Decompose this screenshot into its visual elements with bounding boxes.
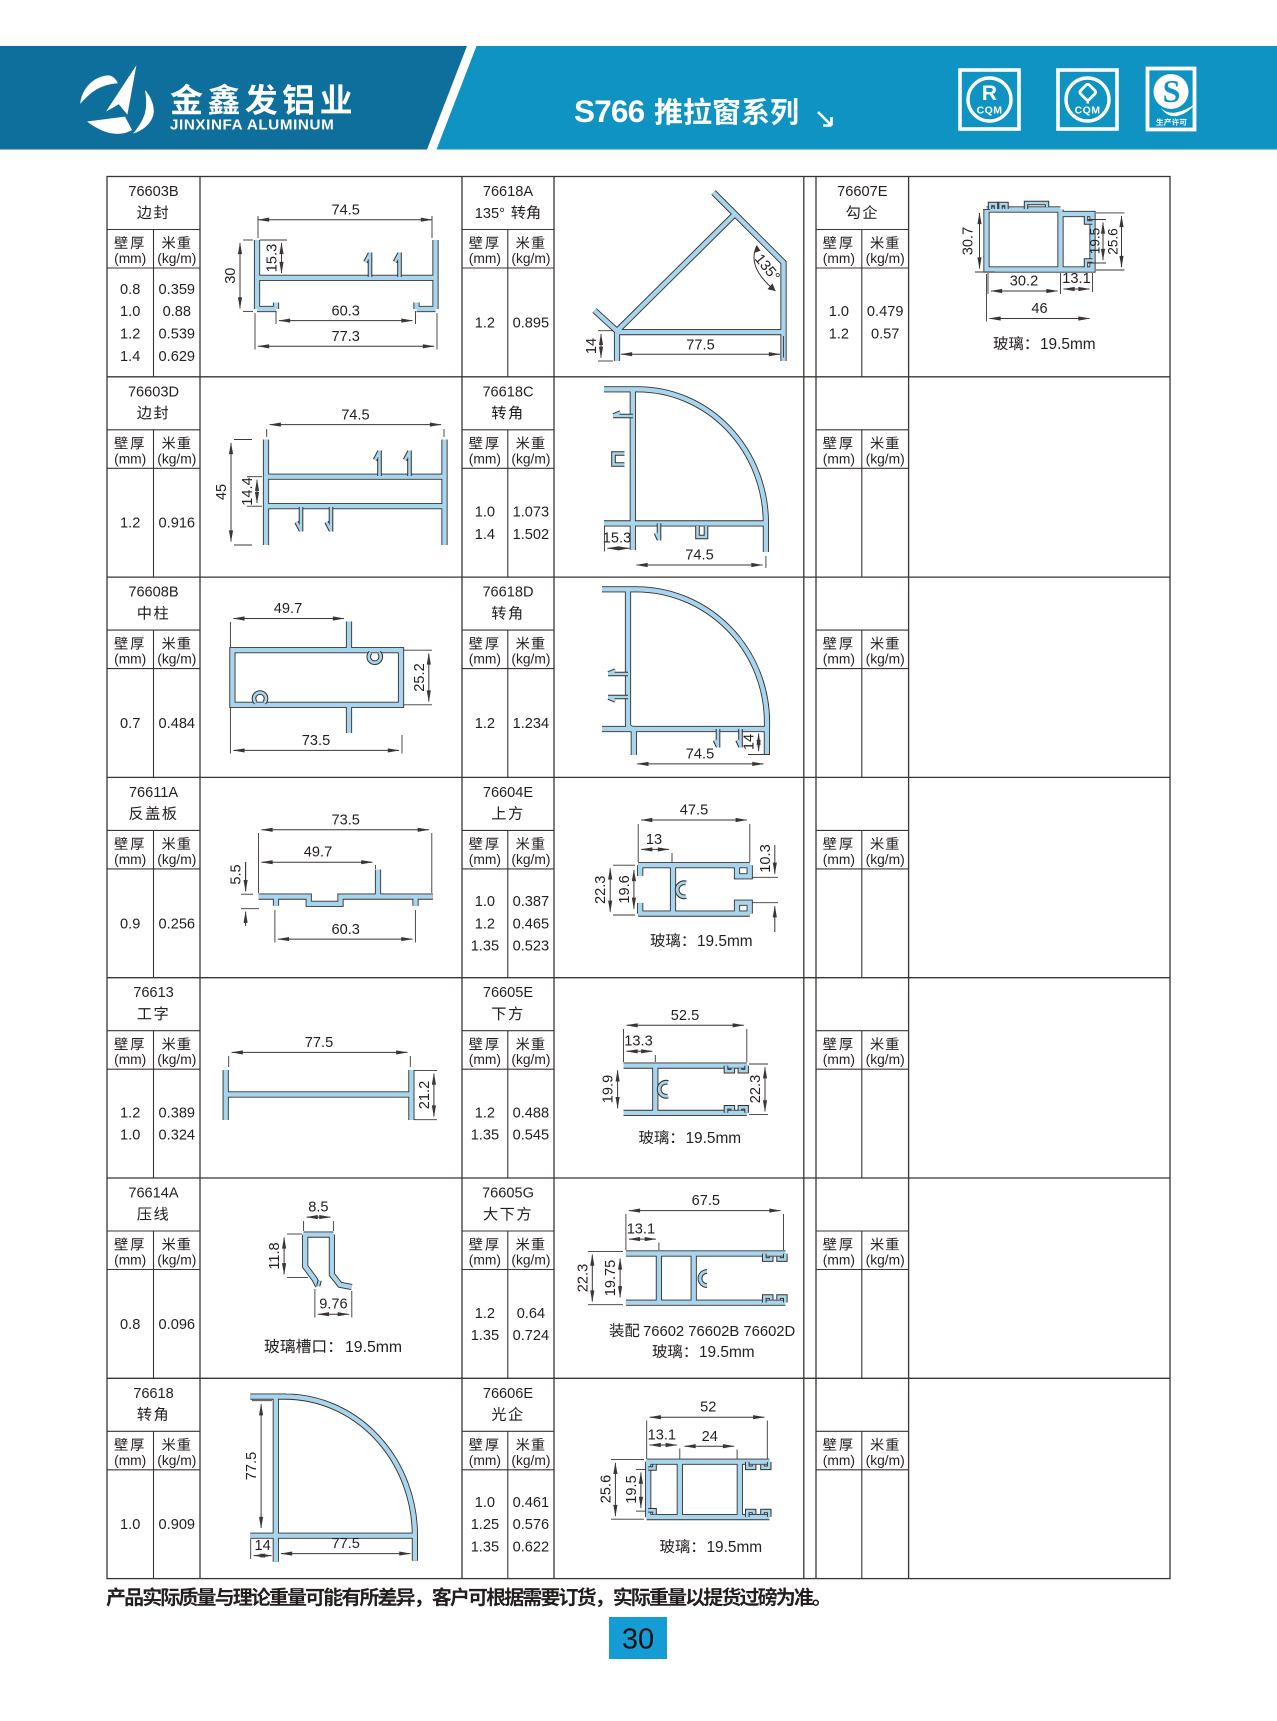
svg-text:76603D: 76603D [128,384,179,400]
svg-text:19.5mm: 19.5mm [697,933,753,950]
svg-text:76608B: 76608B [128,585,178,601]
svg-text:(kg/m): (kg/m) [511,1253,550,1268]
svg-text:19.5mm: 19.5mm [345,1339,402,1356]
svg-text:(mm): (mm) [823,652,855,667]
svg-text:0.64: 0.64 [517,1306,545,1322]
svg-text:(mm): (mm) [114,251,146,266]
svg-text:77.5: 77.5 [331,1536,359,1552]
svg-text:(kg/m): (kg/m) [157,1052,196,1067]
svg-text:77.3: 77.3 [331,329,359,345]
svg-text:1.0: 1.0 [475,894,495,910]
svg-text:76602 76602B 76602D: 76602 76602B 76602D [643,1324,795,1340]
svg-text:S766: S766 [574,93,645,129]
svg-text:76605G: 76605G [482,1186,534,1202]
svg-text:1.2: 1.2 [475,315,495,331]
svg-text:13.1: 13.1 [1062,271,1090,287]
svg-text:(kg/m): (kg/m) [866,1253,905,1268]
svg-text:13.3: 13.3 [624,1034,652,1050]
svg-text:76604E: 76604E [483,785,534,801]
svg-text:0.545: 0.545 [513,1128,550,1144]
svg-text:19.6: 19.6 [617,875,633,903]
svg-text:19.5mm: 19.5mm [699,1344,755,1361]
svg-text:(kg/m): (kg/m) [866,1052,905,1067]
svg-text:0.57: 0.57 [871,327,899,343]
svg-text:13.1: 13.1 [627,1222,655,1238]
svg-text:1.0: 1.0 [120,1517,140,1533]
svg-text:30.7: 30.7 [961,227,977,255]
svg-text:10.3: 10.3 [758,844,774,872]
svg-text:76603B: 76603B [128,184,178,200]
svg-text:76613: 76613 [133,985,174,1001]
svg-text:0.389: 0.389 [159,1105,196,1121]
svg-text:74.5: 74.5 [686,747,714,763]
svg-text:1.2: 1.2 [829,327,849,343]
svg-text:5.5: 5.5 [229,864,245,884]
svg-text:1.25: 1.25 [471,1517,499,1533]
svg-text:74.5: 74.5 [331,203,359,219]
svg-text:0.576: 0.576 [513,1517,550,1533]
svg-text:1.2: 1.2 [120,516,140,532]
svg-text:25.2: 25.2 [412,663,428,691]
svg-text:1.2: 1.2 [475,1306,495,1322]
svg-text:21.2: 21.2 [417,1081,433,1109]
svg-text:0.8: 0.8 [120,282,140,298]
svg-text:(mm): (mm) [823,852,855,867]
svg-text:(kg/m): (kg/m) [157,652,196,667]
svg-text:14: 14 [742,734,758,750]
svg-text:0.096: 0.096 [159,1317,196,1333]
svg-text:(mm): (mm) [114,652,146,667]
svg-text:1.4: 1.4 [475,527,495,543]
svg-text:1.2: 1.2 [475,916,495,932]
svg-text:47.5: 47.5 [680,803,708,819]
svg-text:0.359: 0.359 [159,282,196,298]
svg-text:1.073: 1.073 [513,505,550,521]
svg-text:1.2: 1.2 [475,716,495,732]
svg-text:76618D: 76618D [482,585,533,601]
svg-text:77.5: 77.5 [305,1035,333,1051]
svg-text:30.2: 30.2 [1010,274,1038,290]
svg-text:1.0: 1.0 [475,1495,495,1511]
svg-text:76611A: 76611A [129,785,178,801]
svg-text:22.3: 22.3 [575,1264,591,1292]
svg-text:(mm): (mm) [114,852,146,867]
svg-text:19.9: 19.9 [601,1075,617,1103]
svg-text:52.5: 52.5 [671,1008,699,1024]
svg-text:JINXINFA ALUMINUM: JINXINFA ALUMINUM [170,117,334,134]
svg-text:0.484: 0.484 [159,716,196,732]
svg-text:14.4: 14.4 [240,477,256,505]
svg-text:45: 45 [214,484,230,500]
svg-text:0.629: 0.629 [159,349,196,365]
svg-text:0.324: 0.324 [159,1128,196,1144]
svg-text:(mm): (mm) [469,1453,501,1468]
svg-text:76614A: 76614A [128,1186,179,1202]
svg-text:(mm): (mm) [823,251,855,266]
svg-text:15.3: 15.3 [603,531,631,547]
svg-text:1.2: 1.2 [120,327,140,343]
svg-text:1.0: 1.0 [475,505,495,521]
svg-text:13.1: 13.1 [648,1427,676,1443]
svg-text:0.895: 0.895 [513,315,550,331]
svg-text:(kg/m): (kg/m) [511,1052,550,1067]
svg-text:1.35: 1.35 [471,1328,499,1344]
svg-text:1.35: 1.35 [471,1128,499,1144]
svg-text:0.88: 0.88 [163,304,191,320]
svg-text:76618C: 76618C [482,384,533,400]
svg-text:19.5: 19.5 [624,1475,640,1503]
svg-text:(mm): (mm) [469,1253,501,1268]
svg-text:19.5mm: 19.5mm [707,1539,763,1556]
svg-text:77.5: 77.5 [686,338,714,354]
svg-text:0.387: 0.387 [513,894,550,910]
svg-text:0.622: 0.622 [513,1540,550,1556]
svg-text:(kg/m): (kg/m) [511,852,550,867]
svg-text:76618A: 76618A [483,184,534,200]
svg-text:0.7: 0.7 [120,716,140,732]
svg-text:1.4: 1.4 [120,349,140,365]
svg-text:0.256: 0.256 [159,916,196,932]
svg-text:(mm): (mm) [469,652,501,667]
svg-text:74.5: 74.5 [685,548,713,564]
svg-text:(kg/m): (kg/m) [157,451,196,466]
svg-text:76618: 76618 [133,1386,174,1402]
svg-text:0.8: 0.8 [120,1317,140,1333]
svg-text:1.2: 1.2 [120,1105,140,1121]
svg-text:14: 14 [584,338,600,354]
svg-text:76605E: 76605E [483,985,534,1001]
svg-text:(mm): (mm) [469,852,501,867]
svg-text:(kg/m): (kg/m) [866,652,905,667]
svg-text:(mm): (mm) [114,1253,146,1268]
svg-text:30: 30 [622,1624,654,1656]
svg-text:1.35: 1.35 [471,1540,499,1556]
svg-text:24: 24 [702,1429,718,1445]
svg-text:9.76: 9.76 [319,1297,347,1313]
svg-text:(kg/m): (kg/m) [157,1253,196,1268]
svg-text:15.3: 15.3 [265,244,281,272]
svg-text:0.479: 0.479 [867,304,904,320]
svg-text:1.2: 1.2 [475,1105,495,1121]
svg-text:(kg/m): (kg/m) [866,251,905,266]
svg-text:135°: 135° [475,206,505,222]
svg-text:(mm): (mm) [823,451,855,466]
svg-text:19.75: 19.75 [603,1260,619,1297]
svg-text:60.3: 60.3 [331,922,359,938]
svg-text:77.5: 77.5 [244,1452,260,1480]
svg-text:73.5: 73.5 [331,813,359,829]
svg-text:CQM: CQM [1075,105,1101,117]
svg-text:0.523: 0.523 [513,939,550,955]
svg-text:19.5: 19.5 [1088,228,1103,254]
svg-text:(mm): (mm) [469,451,501,466]
svg-text:(mm): (mm) [114,1052,146,1067]
svg-text:49.7: 49.7 [304,845,332,861]
svg-text:76607E: 76607E [837,184,888,200]
svg-text:(mm): (mm) [469,1052,501,1067]
svg-text:(kg/m): (kg/m) [511,1453,550,1468]
svg-text:60.3: 60.3 [331,304,359,320]
svg-text:(mm): (mm) [114,451,146,466]
svg-text:R: R [982,82,997,105]
svg-text:(kg/m): (kg/m) [511,451,550,466]
svg-text:11.8: 11.8 [267,1242,283,1269]
svg-text:0.916: 0.916 [159,516,196,532]
svg-text:1.0: 1.0 [829,304,849,320]
svg-text:25.6: 25.6 [598,1475,614,1503]
svg-text:1.234: 1.234 [513,716,550,732]
svg-text:S: S [1163,73,1181,109]
svg-text:(kg/m): (kg/m) [866,852,905,867]
svg-text:1.35: 1.35 [471,939,499,955]
svg-text:0.909: 0.909 [159,1517,196,1533]
svg-text:14: 14 [254,1538,270,1554]
svg-text:49.7: 49.7 [274,601,302,617]
svg-text:(kg/m): (kg/m) [157,251,196,266]
svg-text:13: 13 [646,832,662,848]
svg-text:30: 30 [223,268,239,284]
svg-text:1.0: 1.0 [120,304,140,320]
svg-text:0.9: 0.9 [120,916,140,932]
svg-text:46: 46 [1031,301,1047,317]
svg-text:52: 52 [700,1400,716,1416]
svg-text:19.5mm: 19.5mm [686,1130,742,1147]
svg-text:(kg/m): (kg/m) [511,652,550,667]
svg-text:25.6: 25.6 [1106,228,1121,254]
svg-text:73.5: 73.5 [302,733,330,749]
svg-text:(mm): (mm) [823,1052,855,1067]
svg-text:0.465: 0.465 [513,916,550,932]
svg-text:0.539: 0.539 [159,327,196,343]
svg-text:0.724: 0.724 [513,1328,550,1344]
svg-text:0.488: 0.488 [513,1105,550,1121]
svg-text:(kg/m): (kg/m) [157,1453,196,1468]
svg-text:1.0: 1.0 [120,1128,140,1144]
svg-text:22.3: 22.3 [593,876,609,904]
svg-text:(mm): (mm) [114,1453,146,1468]
svg-text:(kg/m): (kg/m) [866,1453,905,1468]
svg-text:(mm): (mm) [823,1453,855,1468]
svg-text:(mm): (mm) [469,251,501,266]
svg-text:67.5: 67.5 [692,1193,720,1209]
svg-text:74.5: 74.5 [341,408,369,424]
svg-text:0.461: 0.461 [513,1495,550,1511]
svg-text:19.5mm: 19.5mm [1040,336,1096,353]
svg-text:(mm): (mm) [823,1253,855,1268]
svg-text:(kg/m): (kg/m) [511,251,550,266]
svg-text:(kg/m): (kg/m) [157,852,196,867]
svg-text:76606E: 76606E [483,1386,534,1402]
svg-text:22.3: 22.3 [748,1075,764,1103]
svg-text:1.502: 1.502 [513,527,550,543]
svg-text:(kg/m): (kg/m) [866,451,905,466]
svg-text:CQM: CQM [977,105,1003,117]
svg-text:8.5: 8.5 [308,1200,328,1216]
